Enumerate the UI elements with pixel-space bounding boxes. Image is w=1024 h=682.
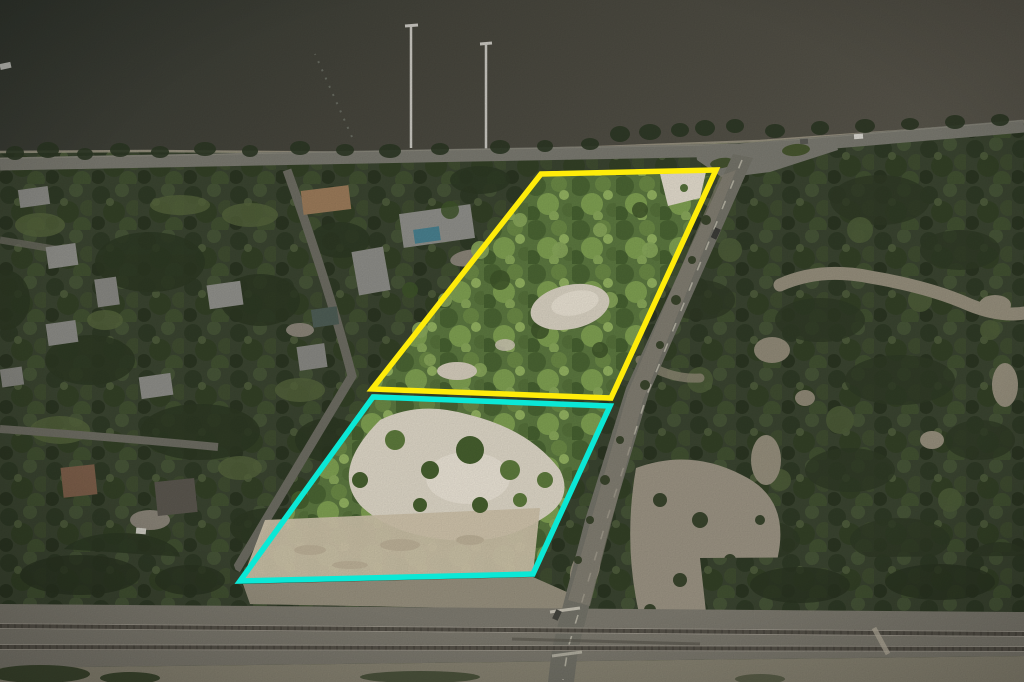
aerial-photo <box>0 0 1024 682</box>
vignette <box>0 0 1024 682</box>
